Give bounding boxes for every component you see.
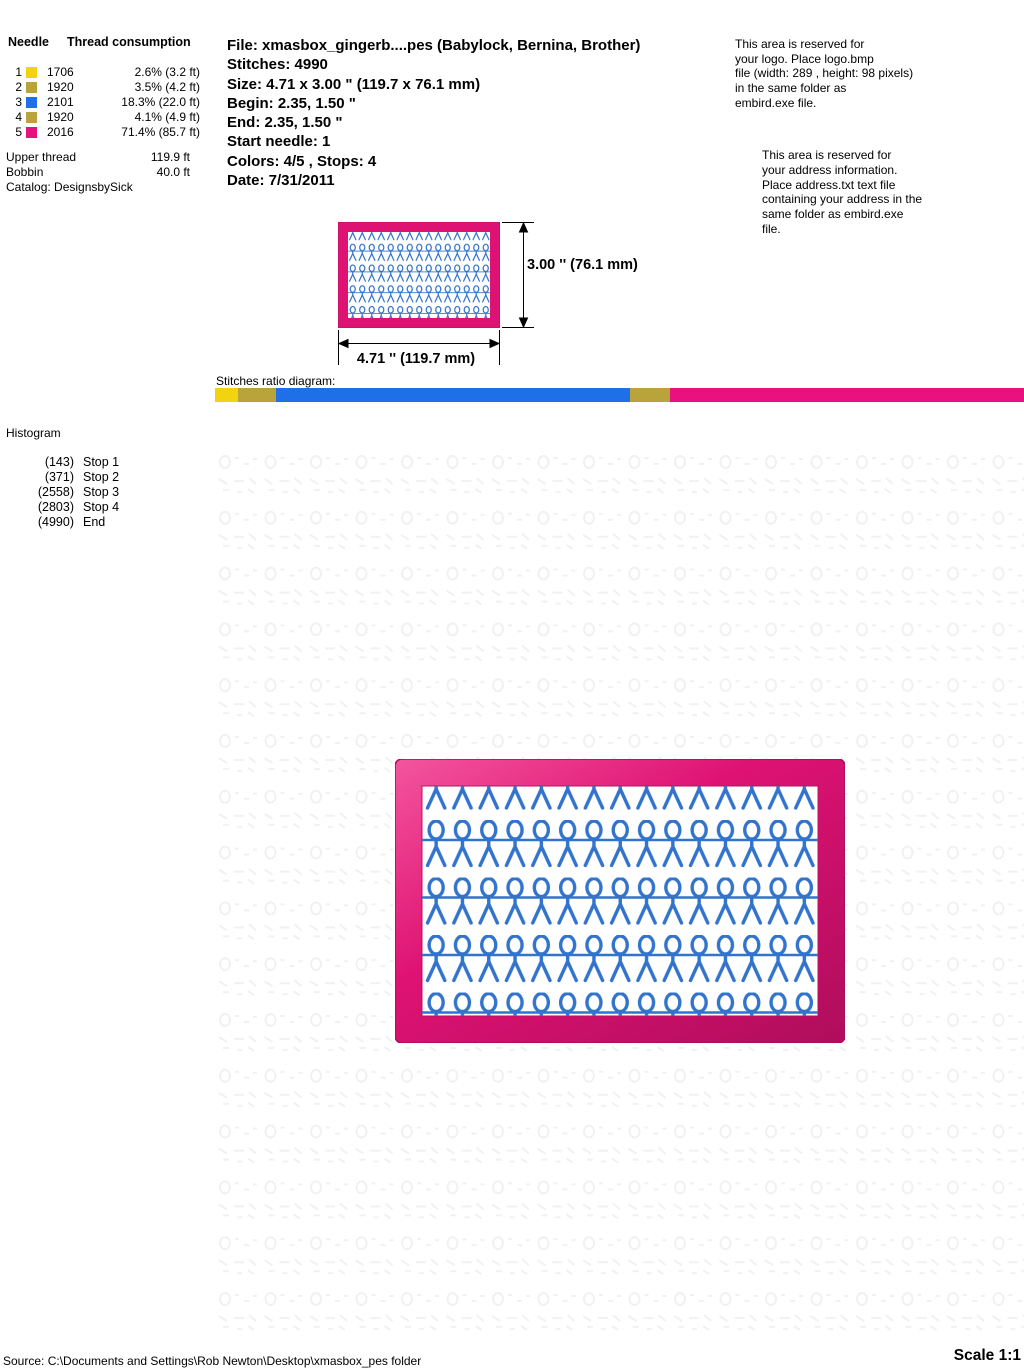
thread-code: 1920	[47, 80, 74, 95]
logo-note-line: This area is reserved for	[735, 37, 913, 52]
stop-label: End	[83, 515, 105, 530]
logo-note-line: file (width: 289 , height: 98 pixels)	[735, 66, 913, 81]
file-info-block: File: xmasbox_gingerb....pes (Babylock, …	[227, 36, 787, 190]
thread-consumption-value: 71.4% (85.7 ft)	[121, 125, 210, 140]
ratio-segment-1	[215, 388, 238, 402]
upper-thread-label: Upper thread	[6, 150, 76, 165]
ratio-segment-4	[630, 388, 670, 402]
address-note-line: containing your address in the	[762, 192, 922, 207]
ratio-segment-3	[276, 388, 630, 402]
thread-consumption-value: 4.1% (4.9 ft)	[135, 110, 210, 125]
upper-thread-row: Upper thread 119.9 ft	[6, 150, 210, 165]
thread-consumption-value: 3.5% (4.2 ft)	[135, 80, 210, 95]
thread-color-swatch	[26, 67, 37, 78]
colors-line: Colors: 4/5 , Stops: 4	[227, 152, 787, 171]
logo-note-line: in the same folder as	[735, 81, 913, 96]
needle-number: 1	[6, 65, 22, 80]
consumption-column-header: Thread consumption	[67, 35, 191, 49]
histogram-entry: (2558) Stop 3	[28, 485, 119, 500]
needle-number: 4	[6, 110, 22, 125]
bobbin-label: Bobbin	[6, 165, 43, 180]
needle-number: 3	[6, 95, 22, 110]
stitches-ratio-label: Stitches ratio diagram:	[216, 374, 335, 388]
height-dimension-label: 3.00 '' (76.1 mm)	[527, 257, 638, 273]
logo-note-line: your logo. Place logo.bmp	[735, 52, 913, 67]
address-note-line: same folder as embird.exe	[762, 207, 922, 222]
address-note-line: Place address.txt text file	[762, 178, 922, 193]
stitches-ratio-bar	[215, 388, 1024, 402]
ratio-segment-2	[238, 388, 275, 402]
address-reserved-note: This area is reserved for your address i…	[762, 148, 922, 237]
address-note-line: This area is reserved for	[762, 148, 922, 163]
needle-column-header: Needle	[8, 35, 49, 49]
thread-row-3: 3 2101 18.3% (22.0 ft)	[6, 95, 210, 110]
needle-number: 5	[6, 125, 22, 140]
thread-color-swatch	[26, 82, 37, 93]
stitch-count: (371)	[28, 470, 74, 485]
thread-code: 2101	[47, 95, 74, 110]
thread-row-5: 5 2016 71.4% (85.7 ft)	[6, 125, 210, 140]
thread-row-4: 4 1920 4.1% (4.9 ft)	[6, 110, 210, 125]
embird-print-preview-page: Needle Thread consumption 1 1706 2.6% (3…	[0, 0, 1024, 1370]
stitches-line: Stitches: 4990	[227, 55, 787, 74]
stitch-count: (2803)	[28, 500, 74, 515]
histogram-entry: (143) Stop 1	[28, 455, 119, 470]
histogram-entry: (371) Stop 2	[28, 470, 119, 485]
thread-consumption-value: 2.6% (3.2 ft)	[135, 65, 210, 80]
ratio-segment-5	[670, 388, 1024, 402]
stop-label: Stop 3	[83, 485, 119, 500]
thread-table-rows: 1 1706 2.6% (3.2 ft) 2 1920 3.5% (4.2 ft…	[6, 65, 210, 140]
catalog-line: Catalog: DesignsbySick	[6, 180, 210, 195]
stop-label: Stop 1	[83, 455, 119, 470]
thread-code: 2016	[47, 125, 74, 140]
thread-table-header: Needle Thread consumption	[6, 35, 210, 49]
bobbin-value: 40.0 ft	[157, 165, 210, 180]
begin-line: Begin: 2.35, 1.50 "	[227, 94, 787, 113]
stop-label: Stop 2	[83, 470, 119, 485]
upper-thread-value: 119.9 ft	[151, 150, 210, 165]
stitch-count: (2558)	[28, 485, 74, 500]
thread-row-1: 1 1706 2.6% (3.2 ft)	[6, 65, 210, 80]
stop-label: Stop 4	[83, 500, 119, 515]
file-name-line: File: xmasbox_gingerb....pes (Babylock, …	[227, 36, 787, 55]
thread-color-swatch	[26, 112, 37, 123]
stitch-count: (143)	[28, 455, 74, 470]
histogram-entry: (2803) Stop 4	[28, 500, 119, 515]
width-dimension-label: 4.71 '' (119.7 mm)	[333, 351, 499, 367]
thread-summary: Upper thread 119.9 ft Bobbin 40.0 ft Cat…	[6, 150, 210, 195]
thread-code: 1920	[47, 110, 74, 125]
end-line: End: 2.35, 1.50 "	[227, 113, 787, 132]
thread-code: 1706	[47, 65, 74, 80]
needle-number: 2	[6, 80, 22, 95]
bobbin-row: Bobbin 40.0 ft	[6, 165, 210, 180]
design-large-preview	[395, 759, 845, 1043]
thread-consumption-value: 18.3% (22.0 ft)	[121, 95, 210, 110]
address-note-line: file.	[762, 222, 922, 237]
start-needle-line: Start needle: 1	[227, 132, 787, 151]
stitch-count: (4990)	[28, 515, 74, 530]
address-note-line: your address information.	[762, 163, 922, 178]
thread-color-swatch	[26, 97, 37, 108]
histogram-entry: (4990) End	[28, 515, 119, 530]
thread-row-2: 2 1920 3.5% (4.2 ft)	[6, 80, 210, 95]
date-line: Date: 7/31/2011	[227, 171, 787, 190]
logo-reserved-note: This area is reserved for your logo. Pla…	[735, 37, 913, 111]
scale-label: Scale 1:1	[954, 1347, 1021, 1365]
thread-consumption-table: Needle Thread consumption 1 1706 2.6% (3…	[6, 35, 210, 195]
logo-note-line: embird.exe file.	[735, 96, 913, 111]
histogram-list: (143) Stop 1 (371) Stop 2 (2558) Stop 3 …	[28, 455, 119, 530]
size-line: Size: 4.71 x 3.00 " (119.7 x 76.1 mm)	[227, 75, 787, 94]
thread-color-swatch	[26, 127, 37, 138]
source-path: Source: C:\Documents and Settings\Rob Ne…	[3, 1354, 421, 1368]
histogram-title: Histogram	[6, 426, 61, 440]
